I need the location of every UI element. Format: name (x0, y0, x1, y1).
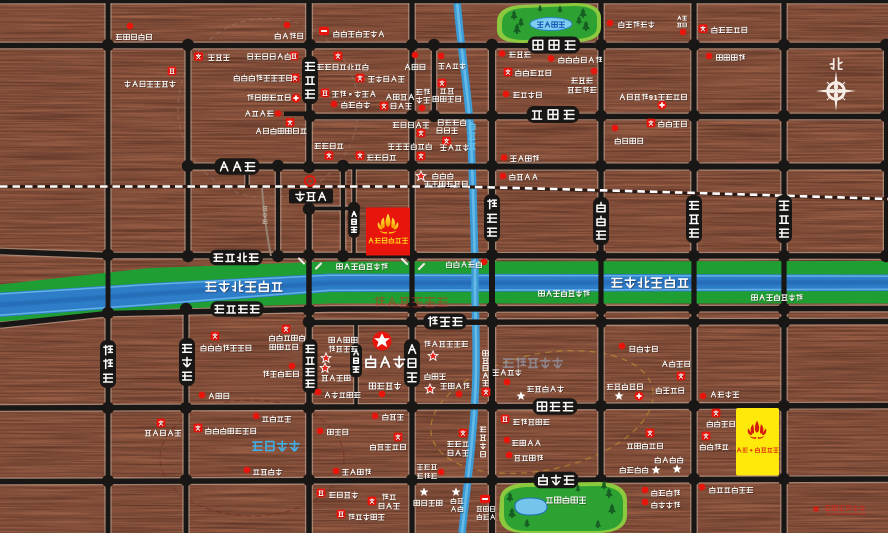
svg-text:1: 1 (654, 93, 658, 102)
svg-text:9: 9 (649, 93, 653, 102)
